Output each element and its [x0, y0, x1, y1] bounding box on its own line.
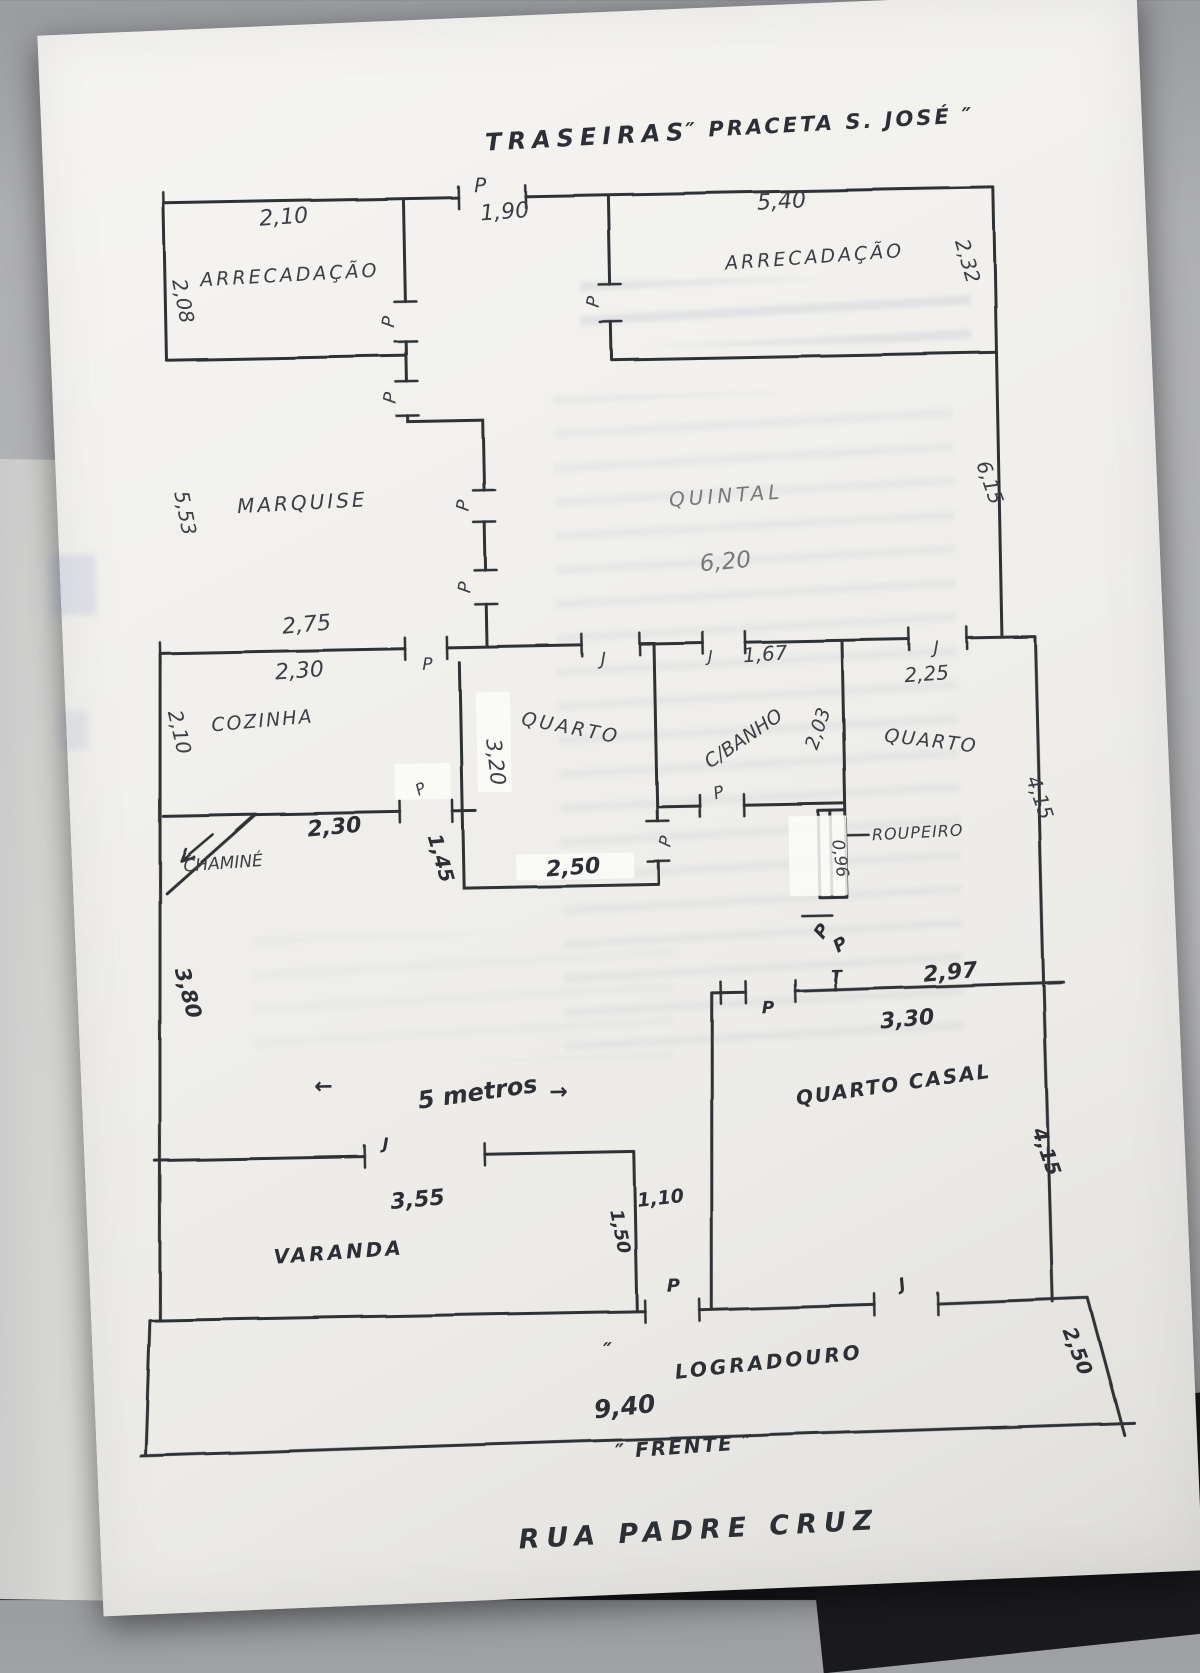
floor-plan-walls — [0, 0, 1200, 1611]
dim-banho-window: 1,67 — [742, 642, 788, 665]
dim-band-top: 2,75 — [281, 612, 332, 638]
dim-front-width: 9,40 — [593, 1391, 657, 1422]
window-marker: J — [933, 639, 939, 657]
dim-cozinha-width: 2,30 — [274, 659, 324, 684]
arrow-right-icon: → — [549, 1082, 568, 1104]
door-marker: P — [762, 1000, 775, 1017]
window-marker: J — [382, 1136, 388, 1152]
window-marker: J — [708, 649, 713, 665]
dim-quarto-mid-height: 3,20 — [482, 738, 508, 787]
dim-casal-top: 2,97 — [922, 960, 978, 987]
dim-arrecadacao-left-width: 2,10 — [259, 205, 309, 230]
dim-arrecadacao-right-width: 5,40 — [757, 190, 807, 215]
dim-corridor-width: 1,10 — [636, 1187, 685, 1211]
door-marker: P — [474, 175, 486, 195]
walls-path — [116, 185, 1134, 1456]
door-marker: P — [667, 1278, 681, 1296]
room-label-marquise: MARQUISE — [237, 489, 368, 516]
dim-quarto-mid-width: 2,50 — [545, 856, 601, 882]
photo-of-floorplan: { "plan": { "orientation": { "back": "TR… — [0, 0, 1200, 1600]
door-swing-marker: T — [831, 968, 842, 984]
dim-roupeiro-width: 0,96 — [828, 838, 850, 878]
dim-top-door: 1,90 — [479, 200, 529, 225]
ditto-mark: ″ — [603, 1340, 612, 1360]
dim-quarto-right-window: 2,25 — [904, 662, 950, 685]
floor-plan-drawing: TRASEIRAS ″ PRACETA S. JOSÉ ″ 2,10 P 1,9… — [0, 0, 1200, 1611]
dim-chamine-wall: 2,30 — [306, 815, 362, 842]
arrow-left-icon: ← — [314, 1076, 333, 1098]
dim-casal-top2: 3,30 — [879, 1007, 935, 1034]
dim-varanda-window: 3,55 — [390, 1187, 446, 1214]
door-marker: P — [422, 657, 433, 674]
window-marker: J — [600, 651, 606, 669]
dim-quintal-width: 6,20 — [699, 549, 752, 576]
